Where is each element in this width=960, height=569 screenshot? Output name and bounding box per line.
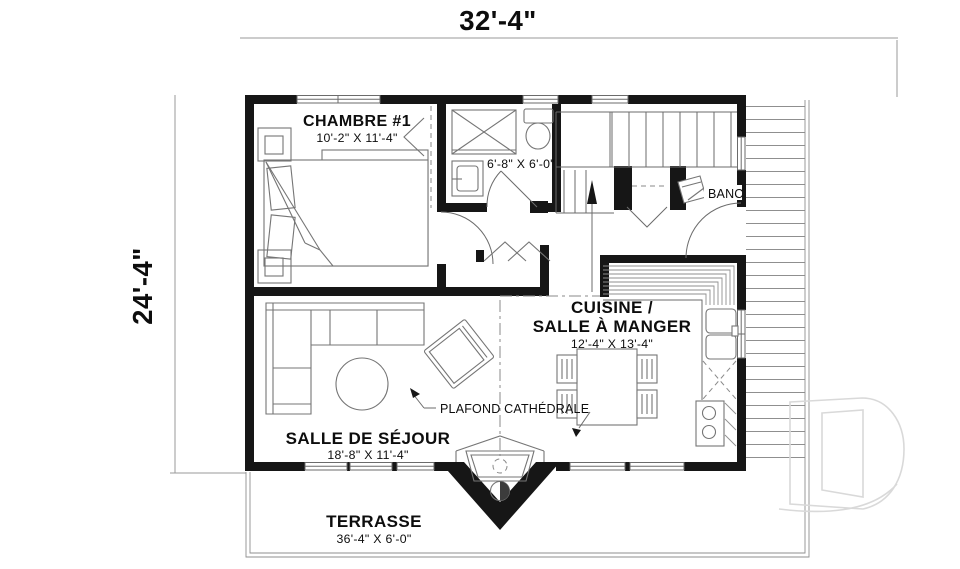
vanity-sink: [452, 161, 483, 196]
label-banc: BANC: [708, 187, 744, 201]
overall-height-dimension: 24'-4": [127, 247, 158, 325]
stair-direction-arrow: [587, 180, 597, 204]
label-cuisine-line2: SALLE À MANGER: [533, 317, 692, 336]
entry-double-door: [627, 207, 667, 227]
bathroom-door-leaf: [501, 171, 537, 207]
bedroom-door-swing: [441, 212, 493, 264]
armchair: [424, 319, 495, 389]
kitchen-sink: [706, 309, 738, 359]
overall-width-dimension: 32'-4": [459, 5, 537, 36]
label-chambre: CHAMBRE #1: [303, 113, 411, 130]
size-chambre: 10'-2" X 11'-4": [316, 131, 397, 145]
label-sejour: SALLE DE SÉJOUR: [286, 429, 451, 448]
label-plafond-cathedrale: PLAFOND CATHÉDRALE: [440, 401, 589, 416]
staircase: [556, 112, 737, 292]
shower: [452, 110, 516, 154]
size-terrasse: 36'-4" X 6'-0": [336, 532, 411, 546]
entry-door-swing: [686, 203, 741, 258]
label-cuisine-line1: CUISINE /: [571, 298, 653, 317]
bathroom-door-swing: [487, 171, 501, 207]
stove: [696, 401, 724, 446]
dishwasher: [703, 361, 736, 399]
size-cuisine: 12'-4" X 13'-4": [571, 337, 653, 351]
side-deck: [746, 106, 805, 458]
bed: [264, 150, 428, 266]
floor-plan-canvas: 32'-4" 24'-4": [0, 0, 960, 569]
size-salle-de-bain: 6'-8" X 6'-0": [487, 157, 555, 171]
hall-closet-bifold: [484, 242, 526, 261]
floor-plan-drawing: 32'-4" 24'-4": [0, 0, 960, 569]
nightstand: [258, 128, 291, 161]
sectional-sofa: [266, 303, 424, 414]
size-sejour: 18'-8" X 11'-4": [327, 448, 408, 462]
label-terrasse: TERRASSE: [326, 512, 422, 531]
coffee-table: [336, 358, 388, 410]
toilet: [524, 109, 553, 149]
